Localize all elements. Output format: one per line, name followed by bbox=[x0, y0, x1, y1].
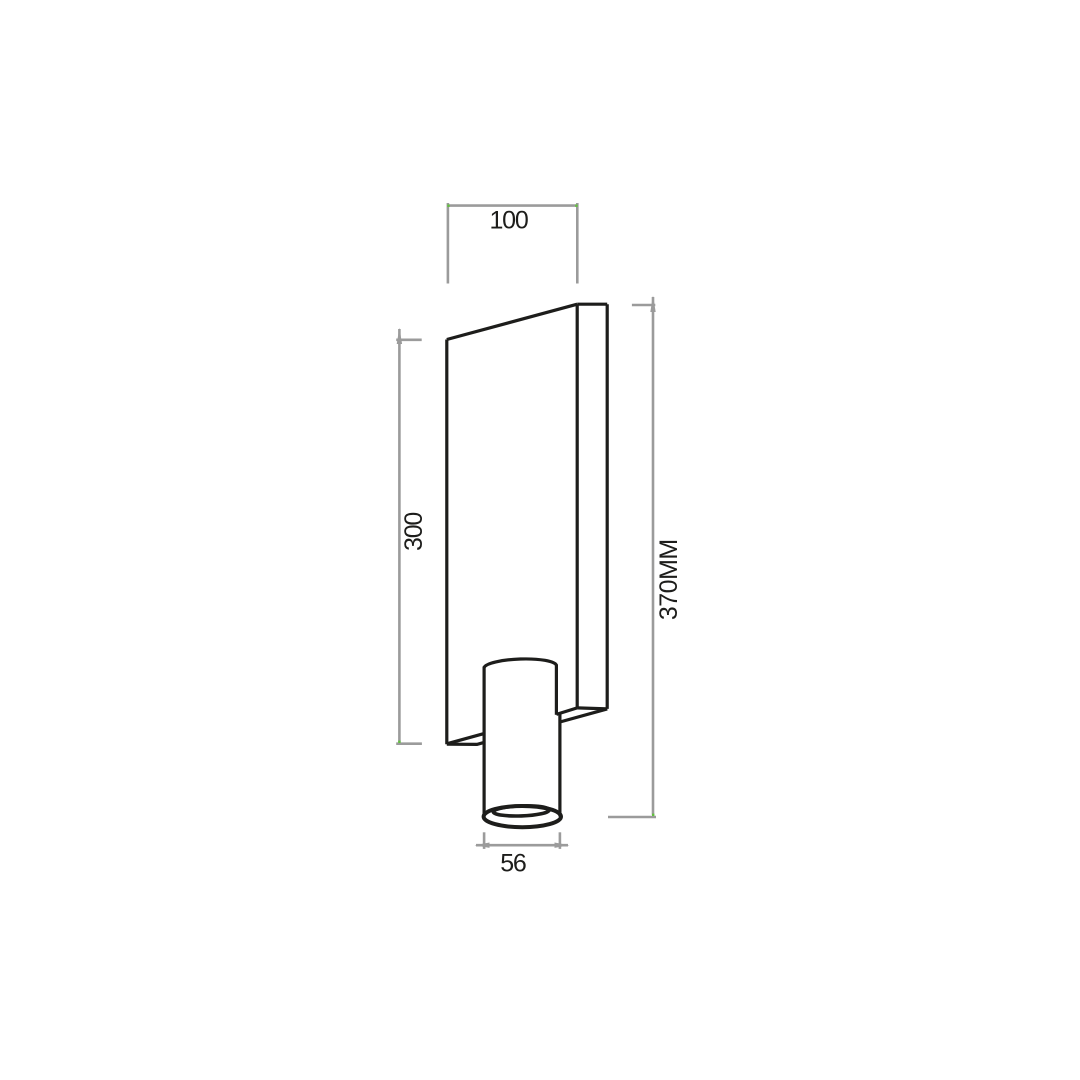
svg-text:100: 100 bbox=[489, 207, 527, 235]
svg-text:300: 300 bbox=[400, 513, 428, 551]
svg-text:56: 56 bbox=[500, 849, 526, 877]
svg-text:370MM: 370MM bbox=[655, 539, 683, 620]
